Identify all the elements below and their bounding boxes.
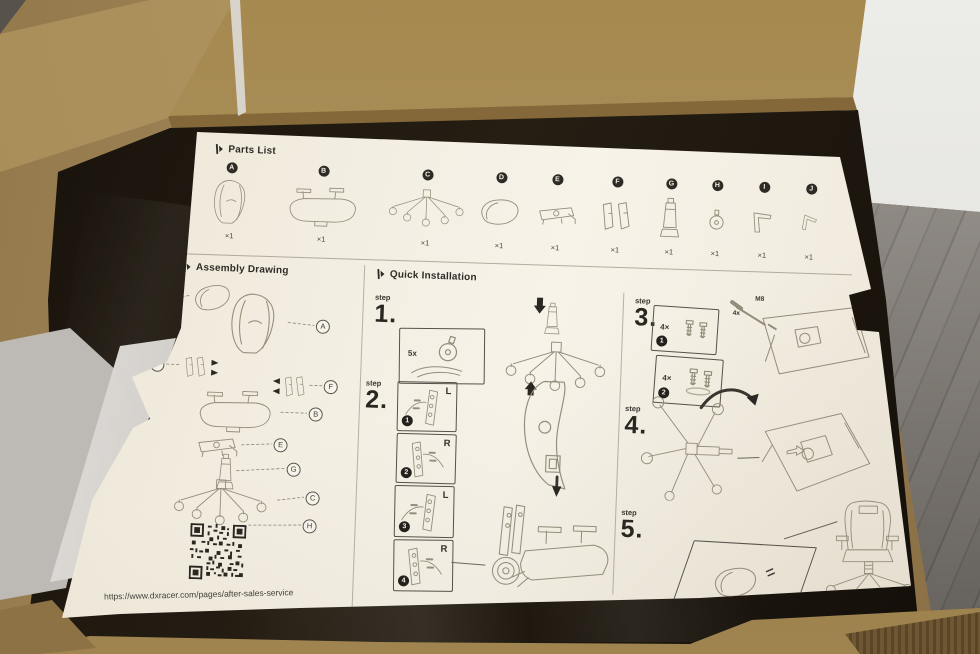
exploded-chair-drawing (152, 280, 366, 537)
step-4-seat-underside-drawing (744, 401, 880, 512)
caster-quantity: 5x (408, 349, 417, 358)
step-number: 1. (374, 299, 398, 328)
step-bullet: 1 (656, 335, 668, 347)
assembly-drawing-title: Assembly Drawing (196, 262, 289, 276)
backrest-part-icon (205, 175, 255, 229)
step-number: 2. (365, 385, 389, 414)
part-qty: ×1 (610, 245, 619, 254)
screw-count-label: 4x (733, 310, 740, 317)
part-qty: ×1 (225, 231, 234, 240)
part-qty: ×1 (551, 243, 560, 252)
part-qty: ×1 (804, 252, 813, 261)
part-item-B: B ×1 (274, 164, 369, 259)
step-2-label: step 2. (365, 379, 389, 412)
step-number: 5. (620, 514, 644, 543)
part-letter: B (318, 165, 329, 176)
seat-part-icon (281, 178, 363, 233)
qr-code (189, 523, 247, 581)
part-letter: A (226, 162, 237, 173)
parts-list-header: Parts List (214, 144, 276, 157)
screw-quantity: 4× (662, 373, 672, 383)
section-flag-icon (376, 269, 385, 280)
parts-list-title: Parts List (228, 144, 276, 157)
step-2-box-4: R 4 (393, 539, 454, 592)
part-letter: J (806, 183, 817, 194)
part-qty: ×1 (495, 241, 504, 250)
screw-size-label: M8 (755, 296, 764, 303)
screw-quantity: 4× (660, 322, 670, 332)
step-4-base-drawing (636, 393, 744, 503)
step-2-backrest-drawing (512, 377, 598, 502)
part-qty: ×1 (421, 238, 430, 247)
step-2-seat-assembly-drawing (478, 498, 616, 601)
allen-key-small-part-icon (799, 197, 821, 250)
step-bullet: 4 (398, 575, 409, 586)
step-3-box-1: 4× 1 (651, 305, 720, 355)
step-2-box-2: R 2 (396, 433, 457, 485)
assembly-drawing-header: Assembly Drawing (182, 262, 289, 277)
unboxing-photo: Parts List A ×1 B ×1 C ×1 D (0, 0, 980, 654)
quick-installation-title: Quick Installation (390, 269, 477, 283)
part-letter: F (612, 176, 623, 187)
part-letter: E (552, 174, 563, 185)
quick-installation-header: Quick Installation (376, 269, 477, 284)
part-letter: C (422, 169, 433, 180)
step-5-label: step 5. (620, 509, 644, 542)
section-flag-icon (214, 144, 223, 155)
part-item-A: A ×1 (183, 161, 278, 256)
step-2-box-3: L 3 (394, 485, 455, 538)
step-1-detail-box: 5x (399, 328, 486, 385)
sheet-content: Parts List A ×1 B ×1 C ×1 D (179, 131, 957, 654)
step-1-label: step 1. (374, 294, 398, 327)
exploded-view-diagram: D A F F B E G C H (152, 280, 366, 537)
part-letter: D (496, 172, 507, 183)
step-2-box-1: L 1 (397, 381, 458, 432)
part-qty: ×1 (317, 234, 326, 243)
part-item-J: J ×1 (762, 182, 857, 277)
